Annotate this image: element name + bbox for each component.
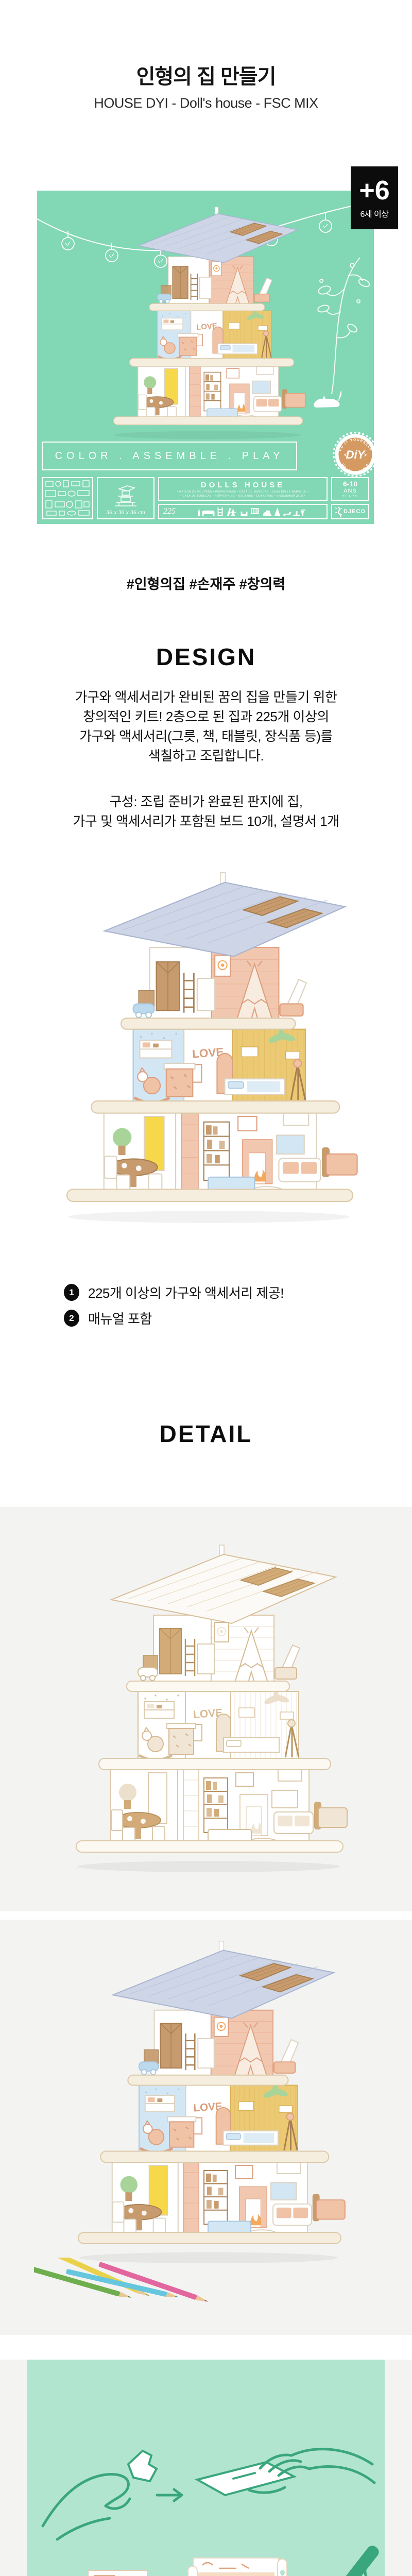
right-info-column: 6-10 ANS YEARS DJECO: [331, 477, 369, 519]
desc-line: 창의적인 키트! 2층으로 된 집과 225개 이상의: [0, 707, 412, 726]
page-title: 인형의 집 만들기: [0, 60, 412, 90]
design-description: 가구와 액세서리가 완비된 꿈의 집을 만들기 위한 창의적인 키트! 2층으로…: [0, 687, 412, 766]
bullet-1-icon: 1: [64, 1284, 79, 1301]
desc-line: 가구와 액세서리가 완비된 꿈의 집을 만들기 위한: [0, 687, 412, 707]
arrow-icon: [157, 2489, 182, 2501]
colored-pencils: [34, 2258, 219, 2325]
age-unit-ans: ANS: [344, 488, 357, 494]
age-unit-years: YEARS: [342, 495, 358, 498]
detail-image-assembly: [0, 2360, 412, 2576]
color-assemble-play-banner: COLOR . ASSEMBLE . PLAY: [42, 442, 297, 470]
size-box: 36 x 36 x 36 cm: [97, 477, 154, 519]
hashtags: #인형의집 #손재주 #창의력: [0, 573, 412, 593]
product-box-art-image: COLOR . ASSEMBLE . PLAY 36 x 36: [37, 191, 374, 524]
colored-dollhouse: [62, 1934, 350, 2269]
brand-box: DJECO: [331, 504, 369, 519]
banner-text: COLOR . ASSEMBLE . PLAY: [55, 450, 284, 462]
dresser-piece: [77, 2570, 162, 2576]
brand-name: DJECO: [344, 509, 366, 515]
product-detail-page: 인형의 집 만들기 HOUSE DYI - Doll's house - FSC…: [0, 0, 412, 2576]
cutout-piece: [128, 2451, 157, 2481]
foliage-illustration: [290, 240, 373, 417]
diy-badge: [333, 432, 374, 477]
feature-item: 1 225개 이상의 가구와 액세서리 제공!: [64, 1283, 284, 1302]
parts-outline-icon: [43, 478, 92, 518]
langs-line-1: • MAISON DE POUPÉES • PUPPENHAUS • CASA …: [177, 490, 309, 494]
detail-image-colored-house: [0, 1920, 412, 2335]
parts-diagram-box: [42, 477, 93, 519]
age-range: 6-10: [343, 480, 357, 487]
bullet-2-icon: 2: [64, 1310, 79, 1327]
detail-heading: DETAIL: [0, 1420, 412, 1448]
lizard-icon: [335, 506, 342, 517]
left-hand-icon: [43, 2475, 130, 2539]
comp-line: 구성: 조립 준비가 완료된 판지에 집,: [0, 792, 412, 811]
langs-line-2: • CASA DE BONECAS • POPPENHUIS • DOCKHUS…: [180, 495, 305, 498]
pen-hand-icon: [316, 2544, 385, 2576]
age-badge-label: 6세 이상: [360, 207, 388, 219]
furniture-silhouettes: [180, 505, 322, 518]
desc-line: 색칠하고 조립합니다.: [0, 746, 412, 766]
cat-silhouette: [314, 391, 341, 408]
age-badge-plus: +6: [359, 176, 389, 205]
dolls-house-box: DOLLS HOUSE • MAISON DE POUPÉES • PUPPEN…: [158, 477, 328, 501]
composition-text: 구성: 조립 준비가 완료된 판지에 집, 가구 및 액세서리가 포함된 보드 …: [0, 792, 412, 831]
dimensions-text: 36 x 36 x 36 cm: [106, 509, 145, 516]
pieces-count: 225: [163, 507, 176, 516]
center-info-column: DOLLS HOUSE • MAISON DE POUPÉES • PUPPEN…: [158, 477, 328, 519]
feature-list: 1 225개 이상의 가구와 액세서리 제공! 2 매뉴얼 포함: [64, 1283, 284, 1334]
hands-assembling-illustration: [27, 2360, 385, 2576]
design-heading: DESIGN: [0, 643, 412, 671]
box-info-row: 36 x 36 x 36 cm DOLLS HOUSE • MAISON DE …: [42, 477, 369, 519]
age-range-box: 6-10 ANS YEARS: [331, 477, 369, 501]
dolls-house-title: DOLLS HOUSE: [201, 481, 285, 489]
pieces-box: 225: [158, 504, 328, 519]
assembly-illustration: [27, 2360, 385, 2576]
desc-line: 가구와 액세서리(그릇, 책, 태블릿, 장식품 등)를: [0, 726, 412, 746]
age-badge: +6 6세 이상: [351, 166, 398, 229]
right-hand-icon: [197, 2449, 374, 2495]
detail-image-uncolored-house: [0, 1507, 412, 1911]
house-size-icon: [112, 484, 140, 507]
feature-item: 2 매뉴얼 포함: [64, 1309, 284, 1328]
crib-piece: [188, 2558, 287, 2576]
assembled-house-image: [51, 863, 360, 1230]
diy-badge-icon: [333, 432, 374, 477]
uncolored-dollhouse: [62, 1530, 350, 1886]
page-subtitle: HOUSE DYI - Doll's house - FSC MIX: [0, 95, 412, 111]
comp-line: 가구 및 액세서리가 포함된 보드 10개, 설명서 1개: [0, 811, 412, 831]
